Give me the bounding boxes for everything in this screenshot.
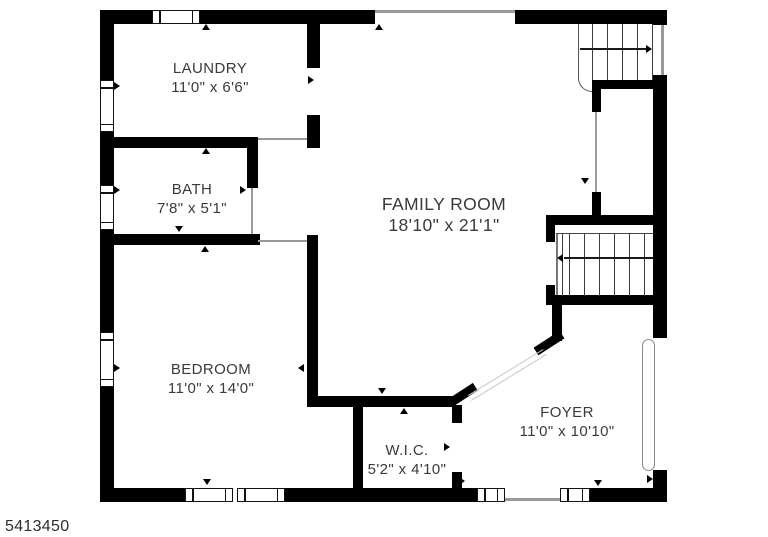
door-marker-icon xyxy=(355,443,361,451)
opening-diagonal-line-2 xyxy=(471,354,547,401)
wall-top-b xyxy=(200,10,375,24)
wall-bedroom-right xyxy=(307,235,318,407)
staircase-up-arrow-icon xyxy=(646,45,652,53)
door-marker-icon xyxy=(459,477,465,485)
door-marker-icon xyxy=(594,297,602,303)
staircase-up-walkline-curve xyxy=(578,24,592,92)
staircase-up-arrow-line xyxy=(580,48,650,50)
wall-familyroom-south xyxy=(307,396,453,407)
wall-stair-dn-stub-top xyxy=(546,215,555,242)
room-label-bedroom: BEDROOM 11'0" x 14'0" xyxy=(168,360,254,398)
wall-laundry-right-lower xyxy=(307,115,320,148)
wall-right-b xyxy=(653,75,667,338)
room-dims: 11'0" x 6'6" xyxy=(171,78,249,97)
door-marker-icon xyxy=(175,226,183,232)
wall-left-a xyxy=(100,10,114,80)
door-marker-icon xyxy=(201,246,209,252)
window-foyer-bottom-2 xyxy=(560,488,590,502)
window-bedroom-left xyxy=(100,332,114,387)
room-dims: 11'0" x 14'0" xyxy=(168,379,254,398)
wall-laundry-bottom xyxy=(107,137,258,148)
wall-bottom-b xyxy=(285,488,477,502)
door-marker-icon xyxy=(203,479,211,485)
wall-laundry-right-upper xyxy=(307,24,320,68)
opening-right xyxy=(661,25,664,75)
wall-wic-left xyxy=(353,407,363,497)
opening-landing xyxy=(595,112,597,192)
staircase-down-steps xyxy=(556,233,653,296)
room-name: FAMILY ROOM xyxy=(382,194,506,215)
window-bedroom-bottom-1 xyxy=(185,488,233,502)
room-dims: 11'0" x 10'10" xyxy=(519,422,614,441)
wall-bath-bottom xyxy=(107,234,260,245)
listing-id: 5413450 xyxy=(5,518,69,536)
door-marker-icon xyxy=(250,176,256,184)
window-laundry-left xyxy=(100,80,114,132)
door-marker-icon xyxy=(594,480,602,486)
wall-top-c xyxy=(515,10,667,24)
door-marker-icon xyxy=(647,475,653,483)
door-marker-icon xyxy=(202,148,210,154)
room-name: BATH xyxy=(157,180,227,199)
door-marker-icon xyxy=(202,24,210,30)
door-marker-icon xyxy=(114,82,120,90)
room-dims: 18'10" x 21'1" xyxy=(382,215,506,236)
opening-bedroom-entry xyxy=(258,240,307,242)
room-name: LAUNDRY xyxy=(171,59,249,78)
staircase-down-arrow-icon xyxy=(557,254,563,262)
room-label-foyer: FOYER 11'0" x 10'10" xyxy=(519,403,614,441)
room-dims: 5'2" x 4'10" xyxy=(368,460,447,479)
door-marker-icon xyxy=(298,364,304,372)
opening-diagonal-line-1 xyxy=(468,349,544,396)
door-marker-icon xyxy=(308,76,314,84)
wall-wic-right-upper xyxy=(452,405,462,423)
front-door xyxy=(642,339,655,471)
wall-left-c xyxy=(100,230,114,332)
window-bedroom-bottom-2 xyxy=(237,488,285,502)
room-dims: 7'8" x 5'1" xyxy=(157,199,227,218)
floor-plan: LAUNDRY 11'0" x 6'6" BATH 7'8" x 5'1" FA… xyxy=(0,0,768,537)
room-label-laundry: LAUNDRY 11'0" x 6'6" xyxy=(171,59,249,97)
wall-right-c xyxy=(653,470,667,502)
wall-landing-stub-upper xyxy=(592,80,601,112)
door-marker-icon xyxy=(240,186,246,194)
window-laundry-top xyxy=(152,10,200,24)
room-name: BEDROOM xyxy=(168,360,254,379)
wall-left-d xyxy=(100,387,114,502)
window-bath-left xyxy=(100,185,114,230)
wall-stair-dn-top xyxy=(546,215,655,225)
wall-right-a xyxy=(653,10,667,25)
staircase-down-arrow-line xyxy=(564,257,653,259)
door-marker-icon xyxy=(114,364,120,372)
door-marker-icon xyxy=(114,186,120,194)
door-marker-icon xyxy=(378,388,386,394)
wall-stair-up-bottom xyxy=(592,80,667,89)
room-label-wic: W.I.C. 5'2" x 4'10" xyxy=(368,441,447,479)
window-foyer-bottom-1 xyxy=(477,488,505,502)
wall-diagonal-wic xyxy=(449,383,478,406)
door-marker-icon xyxy=(375,24,383,30)
room-name: FOYER xyxy=(519,403,614,422)
room-name: W.I.C. xyxy=(368,441,447,460)
opening-bottom xyxy=(505,498,560,501)
door-marker-icon xyxy=(581,178,589,184)
door-marker-icon xyxy=(400,408,408,414)
opening-bath-door xyxy=(251,188,253,234)
opening-top xyxy=(375,10,515,13)
room-label-bath: BATH 7'8" x 5'1" xyxy=(157,180,227,218)
room-label-family-room: FAMILY ROOM 18'10" x 21'1" xyxy=(382,194,506,236)
opening-laundry-hall xyxy=(258,138,307,140)
wall-bottom-a xyxy=(100,488,185,502)
